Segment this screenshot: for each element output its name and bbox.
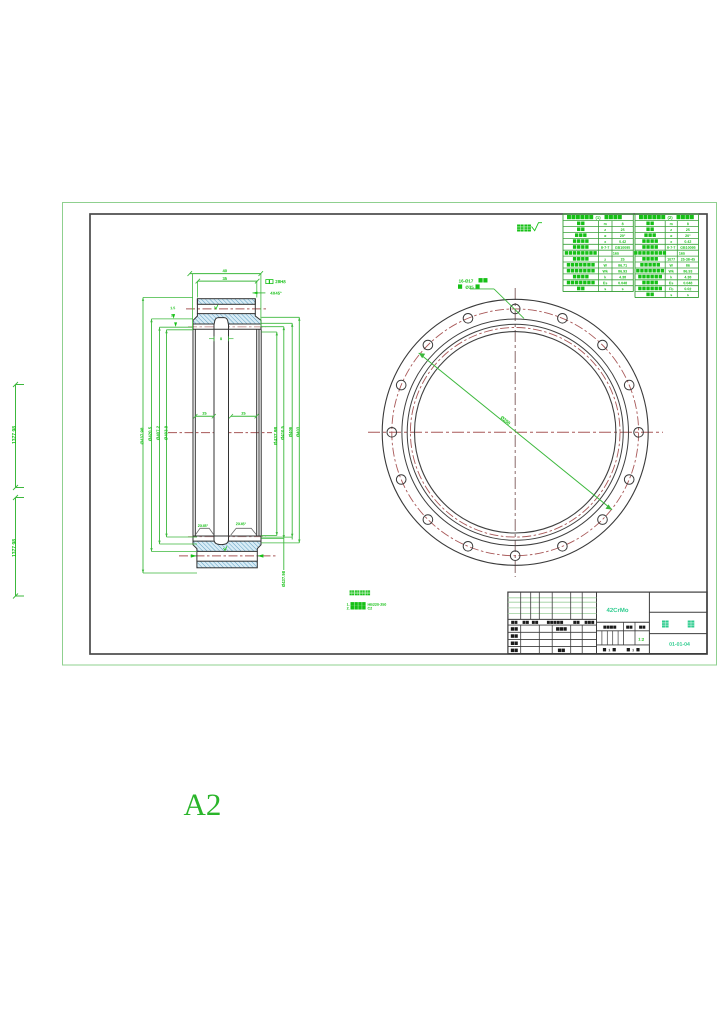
svg-text:40: 40 [222,268,227,273]
svg-text:86.93: 86.93 [683,269,692,273]
svg-text:Ø437.98: Ø437.98 [273,426,279,445]
svg-text:0.048: 0.048 [618,281,627,285]
svg-text:160: 160 [613,252,619,256]
svg-text:Es: Es [603,281,607,285]
svg-text:8-7-7: 8-7-7 [601,246,609,250]
svg-text:Ø410.5: Ø410.5 [280,425,285,439]
svg-text:86: 86 [686,264,690,268]
svg-text:x: x [670,240,672,244]
svg-text:01-01-04: 01-01-04 [669,642,690,648]
svg-text:k: k [604,275,606,279]
svg-text:20°: 20° [685,234,691,238]
svg-text:m: m [604,222,607,226]
svg-text:42CrMo: 42CrMo [606,608,628,614]
svg-text:C2: C2 [367,607,372,611]
svg-text:Es: Es [669,281,673,285]
svg-text:25: 25 [621,258,625,262]
svg-text:0.048: 0.048 [683,281,692,285]
svg-text:A2: A2 [183,787,221,822]
svg-text:Ø403: Ø403 [295,426,300,437]
svg-text:Ø407.2: Ø407.2 [156,425,161,440]
svg-text:Ø420.5: Ø420.5 [148,426,153,441]
svg-text:4.38: 4.38 [684,275,691,279]
svg-text:86.71: 86.71 [618,264,627,268]
svg-text:s: s [604,287,606,291]
svg-text:4X45°: 4X45° [270,291,282,296]
svg-text:4.38: 4.38 [619,275,626,279]
svg-text:x: x [604,240,606,244]
svg-text:25: 25 [686,228,690,232]
svg-text:m: m [670,222,673,226]
svg-text:1.5: 1.5 [170,306,175,310]
svg-text:8: 8 [220,337,222,341]
svg-text:1: 1 [608,648,610,652]
svg-text:28H8: 28H8 [275,279,286,284]
svg-text:8: 8 [622,222,624,226]
svg-text:1377.98: 1377.98 [12,539,18,557]
svg-text:(2): (2) [667,215,673,220]
svg-text:s: s [670,293,672,297]
svg-text:z: z [604,258,606,262]
svg-text:8: 8 [687,222,689,226]
svg-text:k: k [670,275,672,279]
svg-text:Ø406: Ø406 [288,426,293,437]
svg-text:25: 25 [621,228,625,232]
svg-text:1: 1 [632,648,634,652]
svg-text:1:2: 1:2 [638,637,645,642]
svg-text:z: z [670,228,672,232]
svg-text:25: 25 [202,412,206,416]
svg-text:20°: 20° [620,234,626,238]
svg-text:2X45°: 2X45° [198,524,209,528]
svg-text:0.02: 0.02 [684,287,691,291]
svg-text:1077: 1077 [667,258,675,262]
svg-text:Ø437.98: Ø437.98 [140,427,145,444]
svg-text:2X45°: 2X45° [236,522,247,526]
svg-text:Wk: Wk [669,269,674,273]
svg-text:z: z [604,228,606,232]
svg-text:25-38-45: 25-38-45 [681,258,695,262]
svg-text:86.93: 86.93 [618,269,627,273]
svg-text:s: s [622,287,624,291]
svg-text:GB10095: GB10095 [615,246,630,250]
svg-text:1377.98: 1377.98 [12,426,18,444]
svg-text:8-7-7: 8-7-7 [667,246,675,250]
svg-text:160: 160 [679,252,685,256]
svg-text:Ø403.9: Ø403.9 [164,425,169,440]
svg-text:25: 25 [241,412,245,416]
svg-text:W: W [669,264,673,268]
svg-text:2.: 2. [347,607,350,611]
svg-text:0.42: 0.42 [619,240,626,244]
svg-text:0.42: 0.42 [684,240,691,244]
svg-text:Wk: Wk [603,269,608,273]
svg-text:35: 35 [222,276,227,281]
svg-text:Ø437.98: Ø437.98 [281,570,286,587]
svg-text:W: W [603,264,607,268]
svg-text:GB10095: GB10095 [680,246,695,250]
svg-text:s: s [687,293,689,297]
svg-text:(1): (1) [595,215,601,220]
svg-text:16-Ø17: 16-Ø17 [459,278,474,283]
